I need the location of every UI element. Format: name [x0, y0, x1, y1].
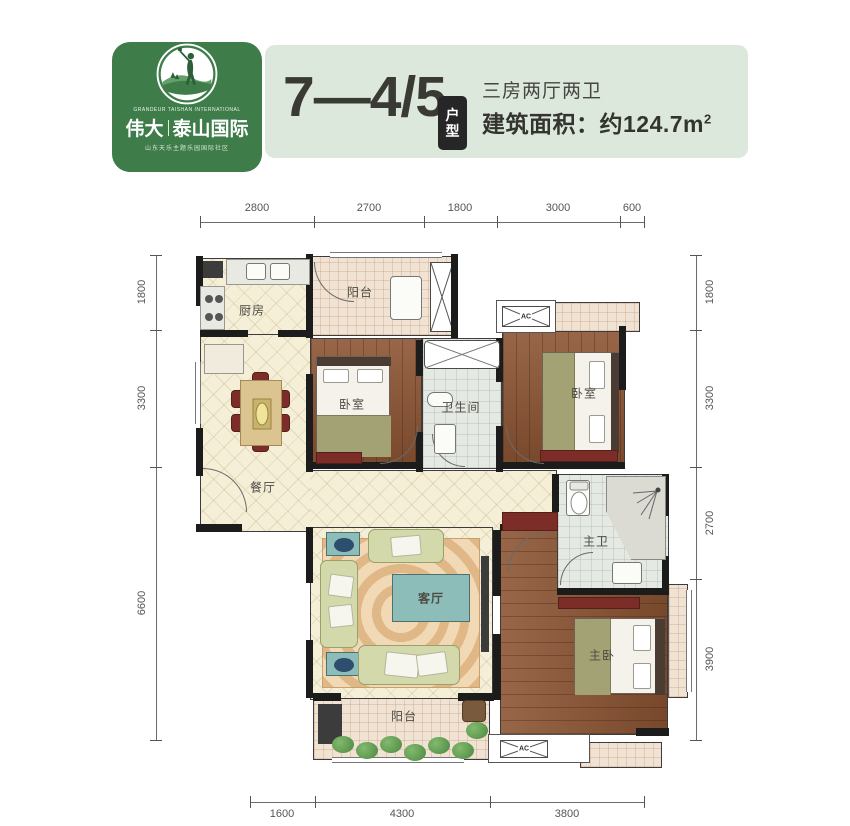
dimension-tick — [644, 796, 645, 808]
wall-segment — [451, 254, 458, 338]
room-label-master-bedroom: 主卧 — [589, 647, 615, 664]
window — [686, 590, 692, 692]
wall-segment — [500, 462, 625, 469]
floorplan-page: GRANDEUR TAISHAN INTERNATIONAL 伟大 泰山国际 山… — [0, 0, 850, 826]
dimension-line-bottom — [250, 802, 645, 803]
wall-segment — [552, 474, 559, 512]
dim-label: 1800 — [704, 280, 716, 304]
toilet-icon — [434, 424, 456, 454]
dim-label: 3900 — [704, 647, 716, 671]
side-table — [326, 652, 360, 676]
wardrobe-icon — [502, 512, 558, 531]
room-label-balcony-bottom: 阳台 — [391, 708, 417, 725]
dimension-tick — [424, 216, 425, 228]
toilet-icon — [566, 480, 590, 516]
room-label-master-bath: 主卫 — [583, 533, 609, 550]
tv-cabinet — [481, 556, 489, 652]
logo-english-text: GRANDEUR TAISHAN INTERNATIONAL — [133, 107, 240, 113]
golfer-logo-icon — [155, 42, 219, 106]
bench-icon — [316, 452, 362, 464]
patio-chair — [462, 700, 486, 722]
area-superscript: 2 — [704, 111, 712, 126]
wall-segment — [557, 588, 669, 595]
wall-segment — [493, 634, 501, 700]
bay-window-right — [668, 584, 688, 698]
dimension-tick — [150, 330, 162, 331]
wall-segment — [196, 524, 242, 532]
sofa — [320, 560, 358, 648]
wall-segment — [278, 330, 312, 337]
kitchen-counter — [226, 259, 310, 285]
room-label-kitchen: 厨房 — [239, 302, 265, 319]
dimension-line-top — [200, 222, 645, 223]
ac-label-bottom: AC — [518, 746, 530, 753]
window — [332, 757, 464, 763]
wall-segment — [619, 326, 626, 390]
dimension-tick — [200, 216, 201, 228]
dim-label: 600 — [623, 202, 641, 214]
plant-icon — [332, 736, 354, 753]
room-label-dining: 餐厅 — [250, 479, 276, 496]
dimension-tick — [315, 796, 316, 808]
washer-icon — [390, 276, 422, 320]
dimension-tick — [150, 467, 162, 468]
wall-segment — [306, 640, 313, 698]
wall-segment — [306, 374, 313, 472]
plant-icon — [380, 736, 402, 753]
badge-char-bottom: 型 — [446, 124, 460, 139]
wall-segment — [200, 330, 248, 337]
logo-brand-left: 伟大 — [125, 114, 163, 141]
room-label-balcony-top: 阳台 — [347, 284, 373, 301]
logo-brand-right: 泰山国际 — [173, 114, 249, 141]
wall-segment — [306, 527, 313, 583]
dimension-tick — [620, 216, 621, 228]
dimension-tick — [490, 796, 491, 808]
logo-tagline: 山东天乐主题乐园国际社区 — [145, 143, 229, 152]
dimension-tick — [644, 216, 645, 228]
dimension-tick — [690, 740, 702, 741]
room-label-bedroom-right: 卧室 — [571, 385, 597, 402]
dim-label: 4300 — [390, 808, 414, 820]
wall-segment — [313, 693, 341, 701]
dimension-tick — [690, 579, 702, 580]
dim-label: 1800 — [448, 202, 472, 214]
dim-label: 2700 — [357, 202, 381, 214]
dimension-line-right — [696, 255, 697, 740]
bed — [574, 618, 664, 694]
window — [330, 252, 442, 258]
bay-window-bottom-right — [580, 742, 662, 768]
plant-icon — [404, 744, 426, 761]
logo-divider — [168, 120, 169, 136]
dim-label: 3300 — [136, 386, 148, 410]
sink-icon — [246, 263, 266, 280]
wall-segment — [493, 530, 501, 596]
bay-window-top — [552, 302, 640, 332]
area-value: 建筑面积：约124.7m — [482, 111, 704, 137]
room-label-bathroom: 卫生间 — [441, 399, 480, 416]
dimension-tick — [690, 330, 702, 331]
dimension-tick — [690, 467, 702, 468]
room-label-living: 客厅 — [418, 590, 444, 607]
wall-segment — [416, 340, 423, 376]
sofa — [368, 529, 444, 563]
sink-icon — [270, 263, 290, 280]
dimension-line-left — [156, 255, 157, 740]
dim-label: 2800 — [245, 202, 269, 214]
dim-label: 3800 — [555, 808, 579, 820]
dim-label: 1800 — [136, 280, 148, 304]
area-text: 建筑面积：约124.7m2 — [482, 105, 712, 139]
dim-label: 3000 — [546, 202, 570, 214]
dim-label: 3300 — [704, 386, 716, 410]
bed — [542, 352, 618, 452]
brand-logo: GRANDEUR TAISHAN INTERNATIONAL 伟大 泰山国际 山… — [112, 42, 262, 172]
dim-label: 6600 — [136, 591, 148, 615]
dimension-tick — [314, 216, 315, 228]
dresser-icon — [558, 597, 640, 609]
dimension-tick — [250, 796, 251, 808]
unit-code: 7—4/5 — [283, 64, 446, 130]
fridge-icon — [203, 261, 223, 278]
sink-icon — [612, 562, 642, 584]
dim-label: 1600 — [270, 808, 294, 820]
bench-icon — [540, 450, 618, 462]
layout-spec: 三房两厅两卫 — [482, 76, 602, 103]
dimension-tick — [690, 255, 702, 256]
plant-icon — [428, 737, 450, 754]
dim-label: 2700 — [704, 511, 716, 535]
dimension-tick — [497, 216, 498, 228]
wall-segment — [636, 728, 669, 736]
sofa — [358, 645, 460, 685]
bathtub-icon — [424, 340, 500, 369]
side-table — [326, 532, 360, 556]
window — [195, 362, 201, 424]
room-label-bedroom-left: 卧室 — [339, 396, 365, 413]
dimension-tick — [150, 255, 162, 256]
wall-segment — [196, 428, 203, 476]
dining-table — [240, 380, 282, 446]
unit-type-badge: 户 型 — [438, 96, 467, 150]
plant-icon — [356, 742, 378, 759]
badge-char-top: 户 — [446, 108, 460, 123]
cabinet-icon — [204, 344, 244, 374]
dimension-tick — [150, 740, 162, 741]
plant-icon — [466, 722, 488, 739]
stove-icon — [200, 286, 225, 330]
logo-brand-text: 伟大 泰山国际 — [125, 114, 248, 141]
ac-label-top: AC — [520, 314, 532, 321]
plant-icon — [452, 742, 474, 759]
